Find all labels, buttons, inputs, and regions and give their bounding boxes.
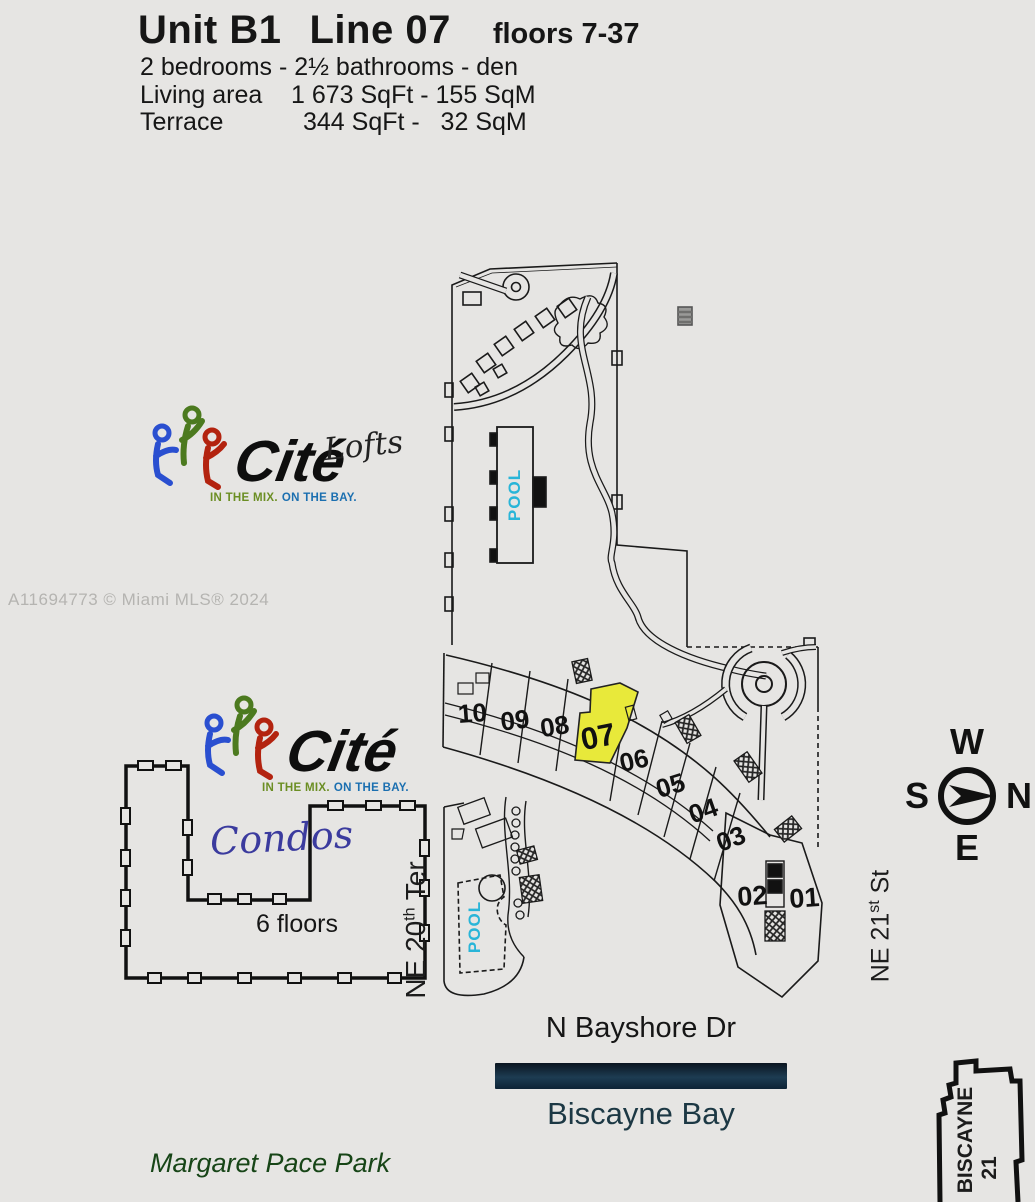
compass-north: N (1006, 775, 1032, 816)
unit-label-10: 10 (457, 697, 488, 729)
lower-pool-area: POOL (444, 797, 543, 995)
terrace-value: 344 SqFt - 32 SqM (303, 108, 527, 137)
biscayne21-number: 21 (978, 1156, 1001, 1180)
street-n-bayshore-dr: N Bayshore Dr (495, 1012, 787, 1045)
unit-label-09: 09 (499, 703, 531, 736)
terrace-label: Terrace (140, 108, 223, 137)
upper-landscape (454, 273, 766, 676)
bayshore-road-bar (495, 1063, 787, 1089)
unit-label-05: 05 (652, 767, 688, 804)
floors-range: floors 7-37 (493, 18, 640, 51)
unit-label-08: 08 (538, 709, 571, 743)
compass-rose: W N S E (903, 712, 1035, 864)
compass-south: S (905, 775, 929, 816)
condos-floors-note: 6 floors (256, 910, 338, 939)
unit-label-03: 03 (712, 819, 750, 857)
cite-tagline: IN THE MIX.ON THE BAY. (210, 492, 357, 504)
unit-label-06: 06 (617, 742, 652, 778)
condos-building-outline (108, 750, 438, 995)
unit-title: Unit B1 (138, 8, 282, 53)
biscayne-bay-label: Biscayne Bay (495, 1096, 787, 1132)
living-area-label: Living area (140, 81, 262, 110)
lofts-label: Lofts (322, 424, 404, 468)
unit-label-07: 07 (578, 716, 619, 757)
bed-bath-line: 2 bedrooms - 2½ bathrooms - den (140, 53, 518, 82)
upper-pool-label: POOL (505, 469, 524, 521)
biscayne21-building: BISCAYNE 21 (918, 1040, 1035, 1202)
line-title: Line 07 (310, 8, 451, 53)
street-ne20-ter: NE 20th Ter (400, 830, 436, 1030)
cite-figures-icon (155, 408, 224, 487)
biscayne21-name: BISCAYNE (954, 1087, 977, 1194)
living-area-value: 1 673 SqFt - 155 SqM (291, 81, 536, 110)
lower-pool-label: POOL (465, 901, 484, 953)
condos-label: Condos (209, 812, 354, 863)
compass-east: E (955, 827, 979, 868)
unit-label-02: 02 (736, 880, 768, 912)
compass-arrow-icon (949, 785, 995, 807)
site-plan: POOL (430, 255, 850, 1015)
unit-label-01: 01 (788, 882, 820, 914)
header: Unit B1 Line 07 floors 7-37 (138, 8, 640, 53)
margaret-pace-park-label: Margaret Pace Park (150, 1148, 390, 1179)
upper-pool: POOL (490, 427, 546, 563)
biscayne21-outline (939, 1061, 1022, 1202)
street-ne21-st: NE 21st St (866, 828, 898, 1024)
mls-watermark: A11694773 © Miami MLS® 2024 (8, 590, 269, 610)
compass-west: W (950, 721, 984, 762)
